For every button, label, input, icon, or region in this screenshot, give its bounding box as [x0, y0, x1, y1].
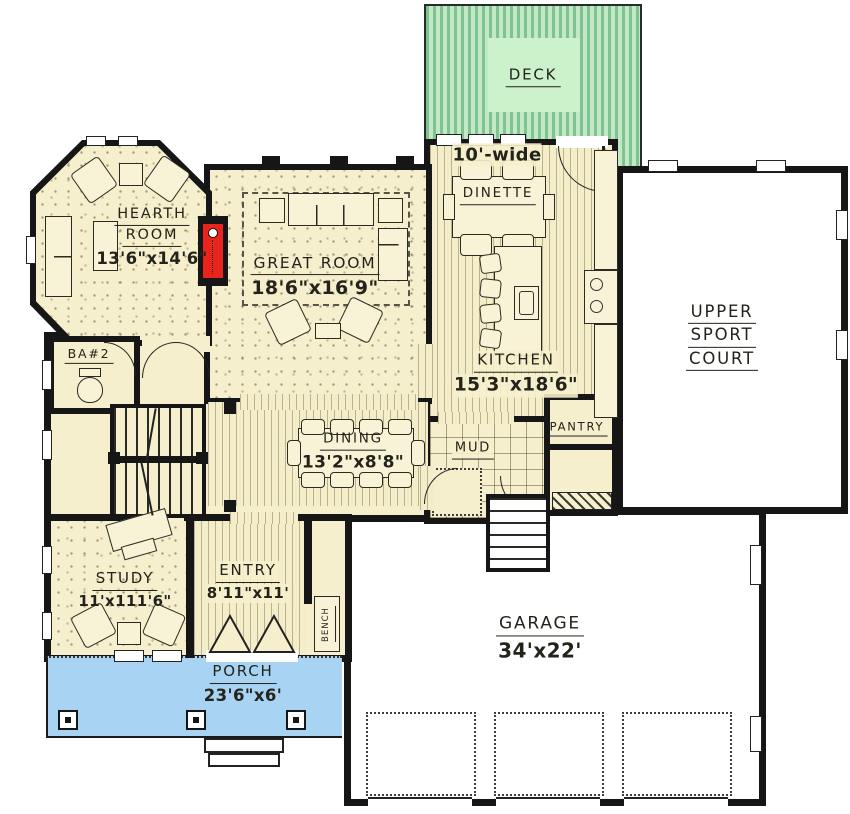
opening-great-kitchen: [418, 344, 434, 398]
room-dims: 34'x22': [498, 638, 582, 664]
room-dims: 15'3"x18'6": [454, 373, 578, 397]
garage-door-opening: [368, 797, 472, 809]
porch-post: [186, 710, 206, 730]
side-table: [117, 622, 141, 645]
dinette-chair: [543, 194, 555, 220]
deck-width-note: 10'-wide: [452, 143, 541, 166]
bar-stool: [479, 303, 502, 324]
hall-bench: [552, 492, 612, 510]
dining-chair: [411, 440, 425, 466]
room-label-hearth: HEARTH ROOM 13'6"x14'6": [96, 205, 207, 269]
window: [86, 136, 106, 146]
dinette-chair: [460, 234, 492, 256]
window: [756, 160, 786, 172]
garage-bay: [622, 712, 732, 796]
room-name: GREAT ROOM: [251, 253, 380, 275]
window: [836, 330, 848, 360]
window: [118, 136, 138, 146]
room-dims: 13'2"x8'8": [302, 451, 404, 473]
room-dims: 18'6"x16'9": [251, 276, 378, 301]
porch-steps: [204, 738, 284, 753]
room-label-bath2: BA#2: [65, 346, 114, 364]
dining-post: [224, 500, 236, 512]
burner-icon: [590, 300, 603, 313]
garage-bay: [366, 712, 476, 796]
counter: [594, 150, 618, 270]
bar-stool: [479, 278, 502, 299]
sink-basin: [519, 291, 534, 315]
room-label-garage: GARAGE 34'x22': [496, 612, 584, 663]
window: [648, 160, 678, 172]
room-dims: 23'6"x6': [204, 685, 282, 706]
room-dims: 13'6"x14'6": [96, 248, 207, 269]
room-label-deck: DECK: [506, 65, 561, 87]
dining-chair: [330, 472, 354, 488]
dining-chair: [388, 472, 412, 488]
garage-door-opening: [624, 797, 728, 809]
room-label-pantry: PANTRY: [547, 420, 608, 437]
dining-post: [224, 402, 236, 414]
room-dims: 8'11"x11': [207, 584, 289, 604]
wall-study-entry: [186, 514, 194, 658]
armchair: [378, 228, 408, 281]
room-name: MUD: [452, 441, 494, 460]
window-stub: [330, 156, 348, 168]
room-label-dinette: DINETTE: [460, 185, 536, 205]
room-name: UPPER: [688, 301, 757, 324]
room-label-great: GREAT ROOM 18'6"x16'9": [251, 253, 380, 301]
room-name: BA#2: [65, 346, 114, 364]
dining-chair: [359, 472, 383, 488]
dinette-chair: [443, 194, 455, 220]
post-dot: [293, 717, 299, 723]
stair-newel: [196, 452, 208, 464]
garage-side-door: [750, 716, 762, 752]
opening-entry-hall: [230, 512, 298, 524]
sofa: [288, 193, 374, 226]
room-name: DINETTE: [460, 185, 536, 205]
dining-chair: [287, 440, 301, 466]
window: [42, 360, 52, 390]
window-stub: [396, 156, 414, 168]
room-name: HEARTH: [114, 205, 190, 226]
garage-stairs: [486, 494, 550, 572]
room-label-entry: ENTRY 8'11"x11': [207, 561, 289, 603]
opening-kitchen-mud: [438, 412, 514, 424]
fireplace-centerline: [212, 240, 213, 274]
room-name: BENCH: [318, 606, 336, 642]
toilet-tank: [79, 368, 101, 377]
porch-post: [286, 710, 306, 730]
room-label-study: STUDY 11'x111'6": [78, 569, 171, 611]
fireplace-flue-icon: [208, 228, 218, 238]
room-label-dining: DINING 13'2"x8'8": [302, 431, 404, 474]
room-label-bench: BENCH: [318, 606, 336, 642]
room-name: GARAGE: [496, 612, 584, 636]
entry-double-door: [208, 612, 296, 654]
room-name: STUDY: [93, 569, 158, 591]
width-note: 10'-wide: [452, 143, 541, 166]
room-name: DECK: [506, 65, 561, 87]
burner-icon: [590, 278, 603, 291]
floor-plan: DECK 10'-wide DINETTE HEARTH ROOM 13'6"x…: [0, 0, 850, 814]
room-name: KITCHEN: [474, 351, 558, 373]
wall-entry-right: [304, 514, 312, 604]
range: [584, 270, 618, 324]
opening-great-dining: [240, 394, 418, 410]
side-table: [315, 323, 341, 339]
window: [42, 612, 52, 640]
garage-door-opening: [496, 797, 600, 809]
room-label-porch: PORCH 23'6"x6': [204, 662, 282, 706]
post-dot: [65, 717, 71, 723]
stair-newel: [108, 452, 120, 464]
room-name: SPORT: [688, 324, 757, 347]
window: [114, 650, 144, 662]
side-table: [119, 163, 143, 186]
room-label-sport-court: UPPER SPORT COURT: [686, 301, 758, 371]
window: [750, 545, 762, 585]
window: [42, 430, 52, 460]
porch-post: [58, 710, 78, 730]
room-label-kitchen: KITCHEN 15'3"x18'6": [454, 351, 578, 398]
garage-bay: [494, 712, 604, 796]
dining-chair: [301, 472, 325, 488]
room-name: ROOM: [123, 226, 182, 247]
room-name: COURT: [686, 348, 758, 371]
room-name: PORCH: [209, 662, 276, 684]
window: [26, 236, 36, 264]
window-stub: [262, 156, 280, 168]
bar-stool: [479, 328, 502, 350]
window: [42, 546, 52, 574]
window: [152, 650, 182, 662]
room-name: ENTRY: [216, 561, 280, 583]
toilet-bowl: [77, 377, 103, 403]
room-name: DINING: [320, 431, 386, 451]
stair-rail: [112, 456, 204, 463]
counter: [594, 324, 618, 418]
room-label-mud: MUD: [452, 441, 494, 460]
side-table: [259, 198, 285, 223]
side-table: [378, 198, 403, 223]
window: [836, 210, 848, 240]
bar-stool: [479, 253, 502, 275]
porch-steps: [208, 753, 280, 767]
sofa: [45, 216, 72, 297]
post-dot: [193, 717, 199, 723]
room-dims: 11'x111'6": [78, 592, 171, 612]
room-name: PANTRY: [547, 420, 608, 437]
